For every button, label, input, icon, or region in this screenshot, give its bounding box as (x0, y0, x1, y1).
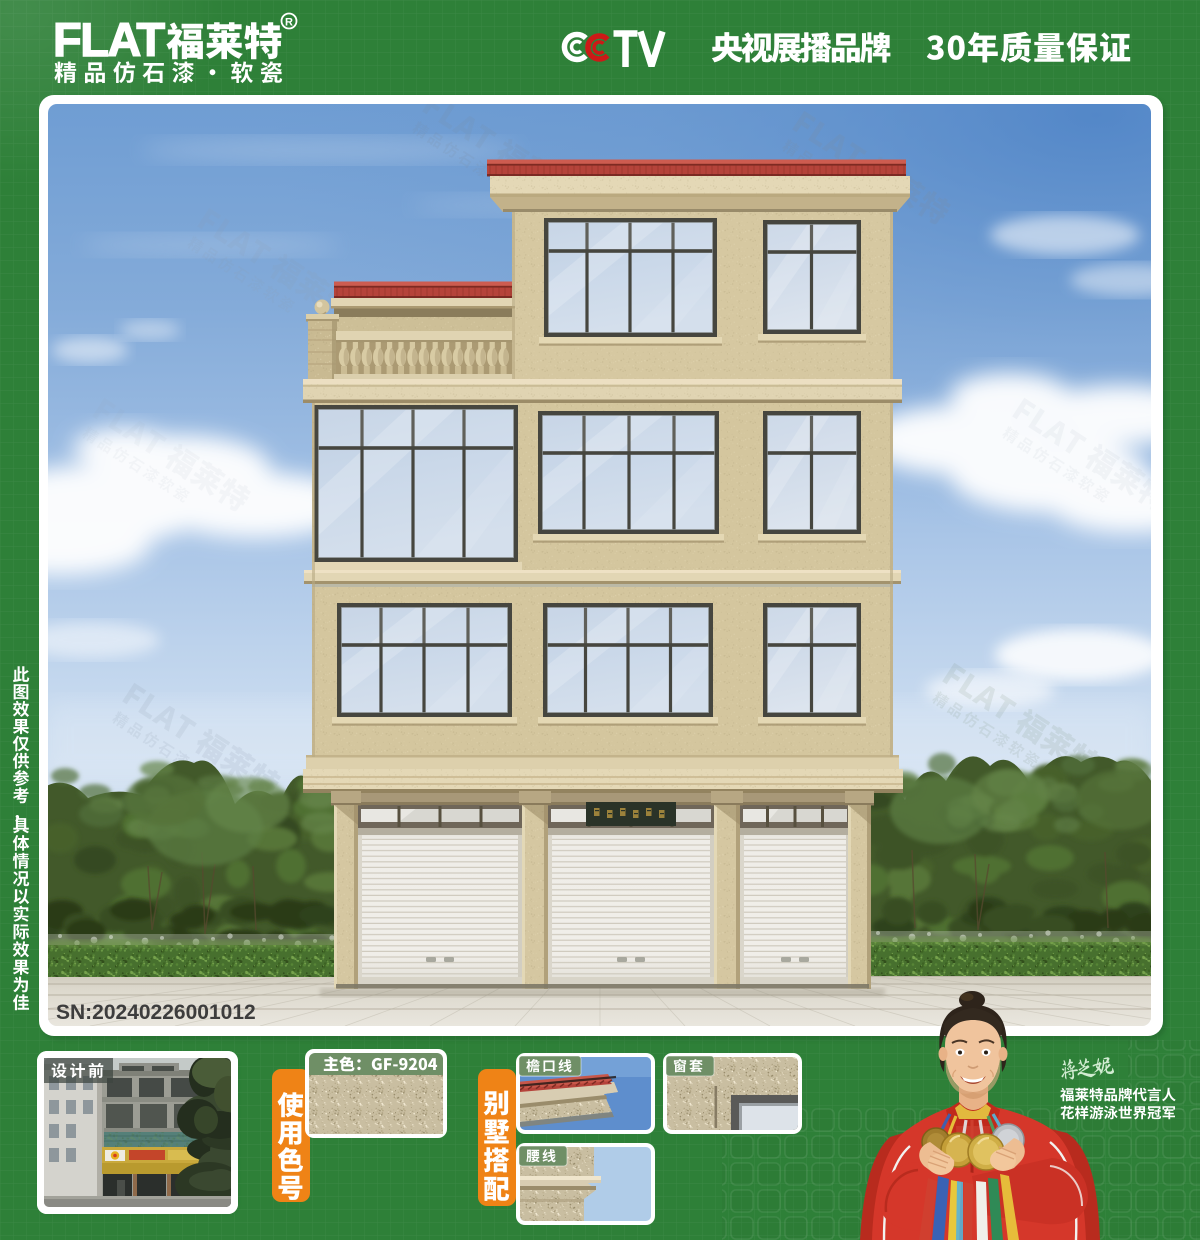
svg-text:FLAT: FLAT (53, 13, 165, 66)
svg-text:R: R (285, 17, 293, 29)
svg-text:SN:20240226001012: SN:20240226001012 (56, 1001, 256, 1024)
